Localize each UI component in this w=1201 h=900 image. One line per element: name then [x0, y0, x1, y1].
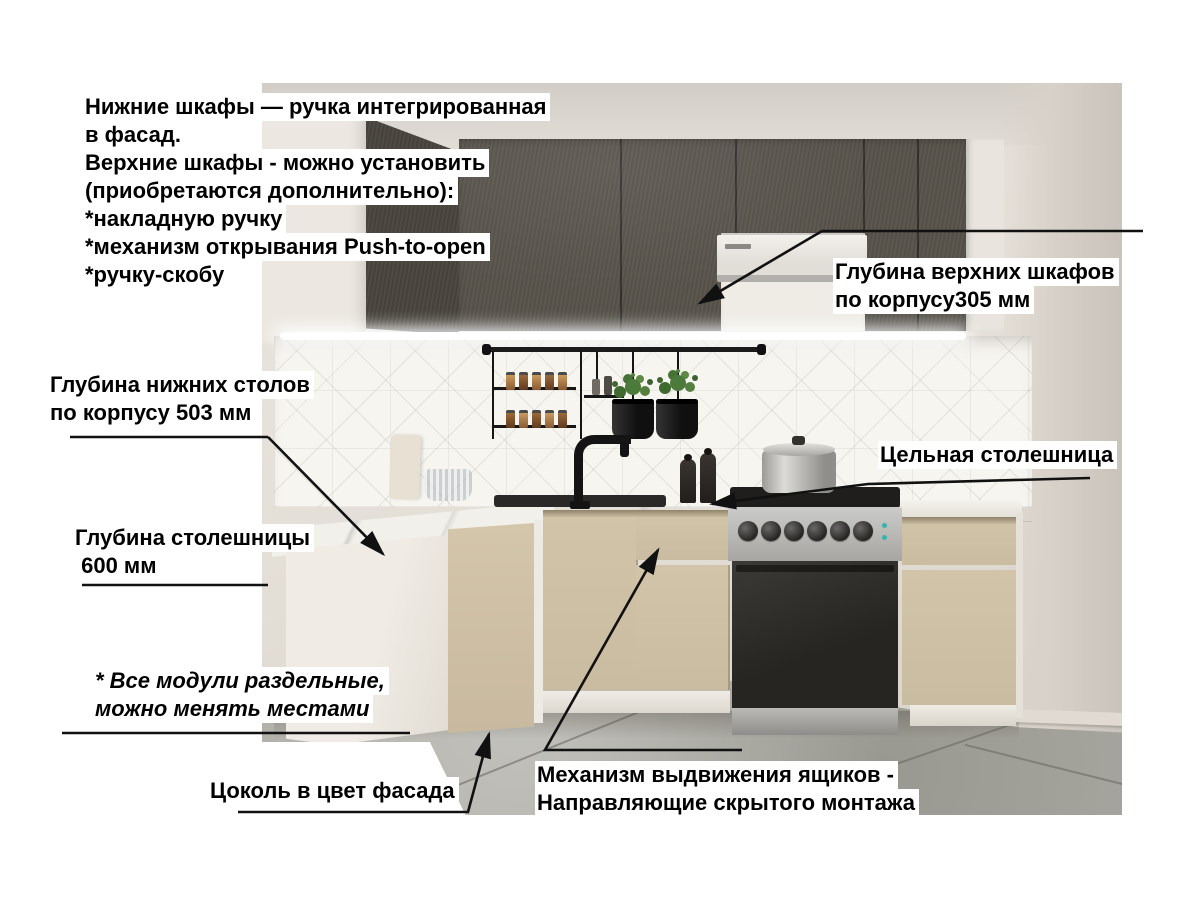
annotation-line: Глубина верхних шкафов: [833, 258, 1119, 286]
product-image-canvas: Нижние шкафы — ручка интегрированная в ф…: [0, 0, 1201, 900]
spice-jars-row: [496, 410, 576, 428]
annotation-line: Верхние шкафы - можно установить: [83, 149, 489, 177]
stove-knob: [761, 521, 781, 541]
spice-jar: [558, 410, 567, 428]
faucet-spout: [620, 440, 629, 457]
spice-jars-row: [496, 372, 576, 390]
stove-knob: [738, 521, 758, 541]
annotation-line: по корпусу 503 мм: [48, 399, 255, 427]
annotation-line: (приобретаются дополнительно):: [83, 177, 458, 205]
floor-grout-line: [965, 744, 1122, 794]
annotation-line: *накладную ручку: [83, 205, 286, 233]
annotation-line: можно менять местами: [93, 695, 373, 723]
annotation-line: *ручку-скобу: [83, 261, 228, 289]
stove-knob: [784, 521, 804, 541]
base-cabinet-door: [902, 570, 1018, 705]
spice-jar: [506, 410, 515, 428]
spice-shelf: [492, 351, 582, 439]
pepper-grinder: [680, 459, 696, 503]
hood-logo: [725, 244, 751, 249]
led-light-strip: [280, 332, 966, 340]
annotation-line: Направляющие скрытого монтажа: [535, 789, 919, 817]
faucet: [574, 435, 631, 506]
base-corner-cabinet-front: [448, 523, 534, 733]
herb-plant: [625, 379, 641, 395]
faucet-base: [570, 501, 590, 509]
small-jar: [592, 379, 600, 395]
annotation-solid-countertop: Цельная столешница: [878, 441, 1117, 469]
annotation-line: *механизм открывания Push-to-open: [83, 233, 490, 261]
annotation-line: 600 мм: [73, 552, 160, 580]
annotation-upper-cabinet-depth: Глубина верхних шкафов по корпусу305 мм: [833, 258, 1119, 314]
pepper-grinder: [700, 453, 716, 503]
base-cabinet-door: [636, 565, 730, 690]
annotation-handles-note: Нижние шкафы — ручка интегрированная в ф…: [83, 93, 550, 289]
glass-bowl: [424, 469, 472, 501]
spice-jar: [558, 372, 567, 390]
stove-indicator-light: [882, 523, 887, 528]
cutting-board: [389, 434, 421, 499]
small-jar: [604, 376, 612, 395]
stove-knob: [853, 521, 873, 541]
stove-knob: [807, 521, 827, 541]
annotation-line: Цоколь в цвет фасада: [208, 777, 459, 805]
annotation-line: * Все модули раздельные,: [93, 667, 389, 695]
stove-knobs: [738, 521, 878, 541]
cabinet-edge-strip: [534, 520, 543, 723]
stove-base: [732, 708, 898, 735]
annotation-line: Нижние шкафы — ручка интегрированная: [83, 93, 550, 121]
annotation-drawer-mechanism: Механизм выдвижения ящиков - Направляющи…: [535, 761, 919, 817]
annotation-line: в фасад.: [83, 121, 185, 149]
stove-indicator-light: [882, 535, 887, 540]
annotation-line: Глубина столешницы: [73, 524, 314, 552]
annotation-line: Механизм выдвижения ящиков -: [535, 761, 898, 789]
utensil-shelf: [584, 395, 624, 398]
countertop-right: [900, 500, 1022, 518]
base-cabinet-drawer: [902, 517, 1018, 565]
plinth: [910, 705, 1016, 726]
base-cabinet-door: [543, 510, 638, 690]
spice-jar: [532, 372, 541, 390]
spice-jar: [545, 372, 554, 390]
plinth: [543, 690, 730, 713]
annotation-countertop-depth: Глубина столешницы 600 мм: [73, 524, 314, 580]
annotation-line: по корпусу305 мм: [833, 286, 1034, 314]
herb-plant: [670, 375, 686, 391]
spice-jar: [506, 372, 515, 390]
annotation-base-cabinet-depth: Глубина нижних столов по корпусу 503 мм: [48, 371, 314, 427]
annotation-plinth: Цоколь в цвет фасада: [208, 777, 459, 805]
annotation-line: Цельная столешница: [878, 441, 1117, 469]
cooking-pot: [762, 451, 836, 493]
cabinet-edge-strip: [1016, 513, 1023, 718]
stove-knob: [830, 521, 850, 541]
hanging-herb-pot: [656, 399, 698, 439]
annotation-modules-note: * Все модули раздельные, можно менять ме…: [93, 667, 389, 723]
base-cabinet-drawer: [636, 510, 730, 560]
spice-jar: [519, 372, 528, 390]
spice-jar: [545, 410, 554, 428]
oven-door: [732, 561, 898, 708]
spice-jar: [519, 410, 528, 428]
spice-jar: [532, 410, 541, 428]
annotation-line: Глубина нижних столов: [48, 371, 314, 399]
hanging-herb-pot: [612, 399, 654, 439]
